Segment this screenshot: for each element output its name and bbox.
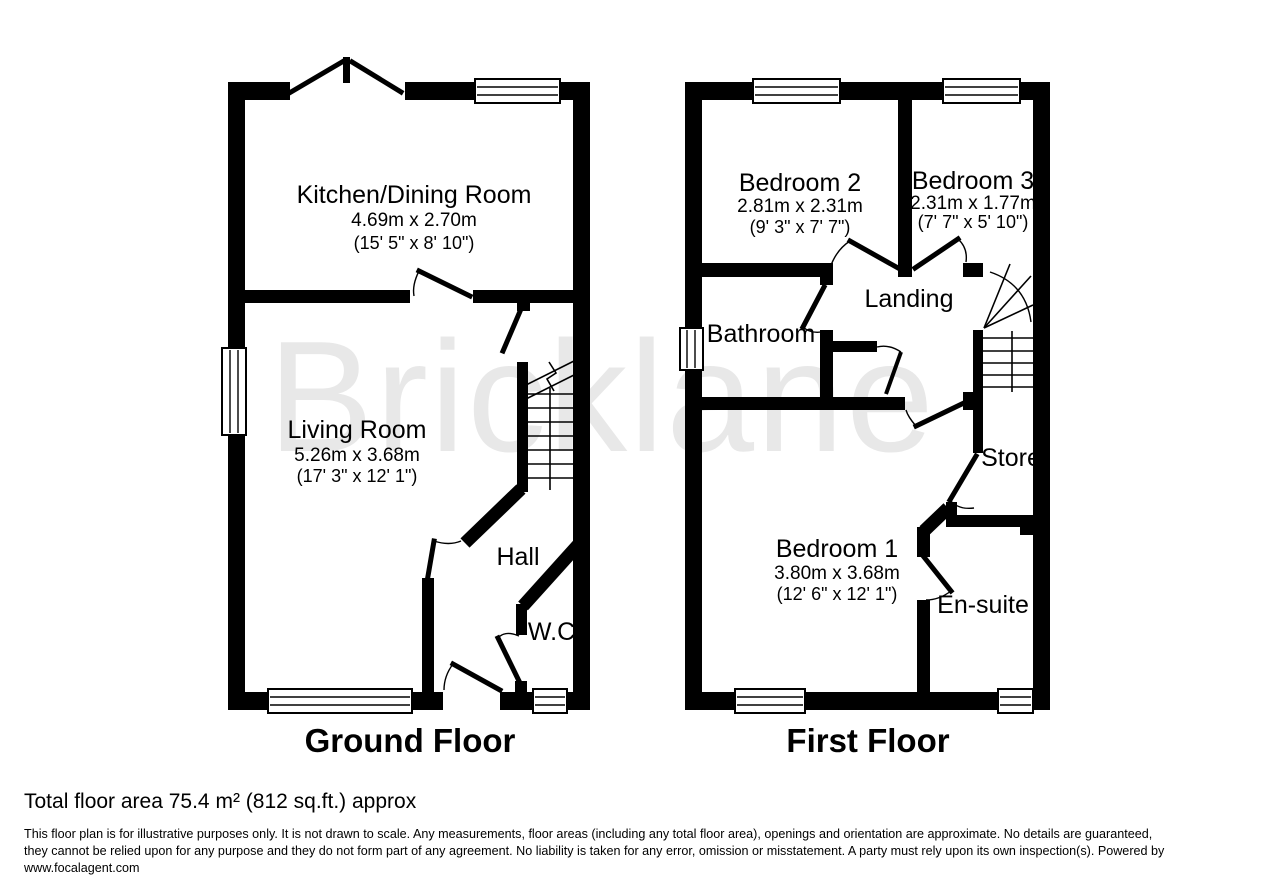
french-doors [291, 57, 401, 92]
room-label-landing: Landing [865, 285, 954, 313]
room-dims-living-metric: 5.26m x 3.68m [294, 445, 420, 466]
room-dims-bedroom3-imperial: (7' 7" x 5' 10") [918, 212, 1029, 232]
room-dims-living-imperial: (17' 3" x 12' 1") [297, 466, 418, 486]
room-label-bedroom1: Bedroom 1 [776, 535, 898, 563]
room-dims-bedroom2-imperial: (9' 3" x 7' 7") [750, 217, 851, 237]
first-floor-stairs [983, 264, 1033, 392]
room-label-living: Living Room [288, 416, 427, 444]
room-label-bedroom3: Bedroom 3 [912, 167, 1034, 195]
floorplan-page: Bricklane [0, 0, 1280, 895]
room-label-ensuite: En-suite [937, 591, 1029, 619]
ground-floor-windows [222, 79, 567, 713]
room-label-kitchen: Kitchen/Dining Room [297, 181, 532, 209]
total-floor-area: Total floor area 75.4 m² (812 sq.ft.) ap… [24, 790, 416, 814]
first-floor-diagonal-walls [924, 508, 948, 531]
ground-floor-title: Ground Floor [305, 722, 516, 759]
ground-floor-walls [228, 82, 590, 710]
room-dims-bedroom1-metric: 3.80m x 3.68m [774, 563, 900, 584]
room-label-hall: Hall [496, 543, 539, 571]
disclaimer-line-1: This floor plan is for illustrative purp… [24, 827, 1152, 841]
ground-floor-stairs [524, 361, 574, 490]
room-dims-kitchen-metric: 4.69m x 2.70m [351, 210, 477, 231]
room-label-bedroom2: Bedroom 2 [739, 169, 861, 197]
room-label-bathroom: Bathroom [707, 320, 815, 348]
room-label-store: Store [981, 444, 1041, 472]
first-floor-title: First Floor [786, 722, 949, 759]
room-labels: Kitchen/Dining Room 4.69m x 2.70m (15' 5… [288, 167, 1041, 646]
room-dims-bedroom1-imperial: (12' 6" x 12' 1") [777, 584, 898, 604]
floor-titles: Ground Floor First Floor [305, 722, 950, 759]
room-dims-bedroom2-metric: 2.81m x 2.31m [737, 196, 863, 217]
ground-floor-plan [222, 57, 590, 713]
room-label-wc: W.C. [528, 618, 582, 646]
floorplan-drawing: Kitchen/Dining Room 4.69m x 2.70m (15' 5… [0, 0, 1280, 895]
website-link: www.focalagent.com [24, 861, 140, 875]
disclaimer-line-2: they cannot be relied upon for any purpo… [24, 844, 1164, 858]
room-dims-kitchen-imperial: (15' 5" x 8' 10") [354, 233, 475, 253]
room-dims-bedroom3-metric: 2.31m x 1.77m [910, 193, 1036, 214]
